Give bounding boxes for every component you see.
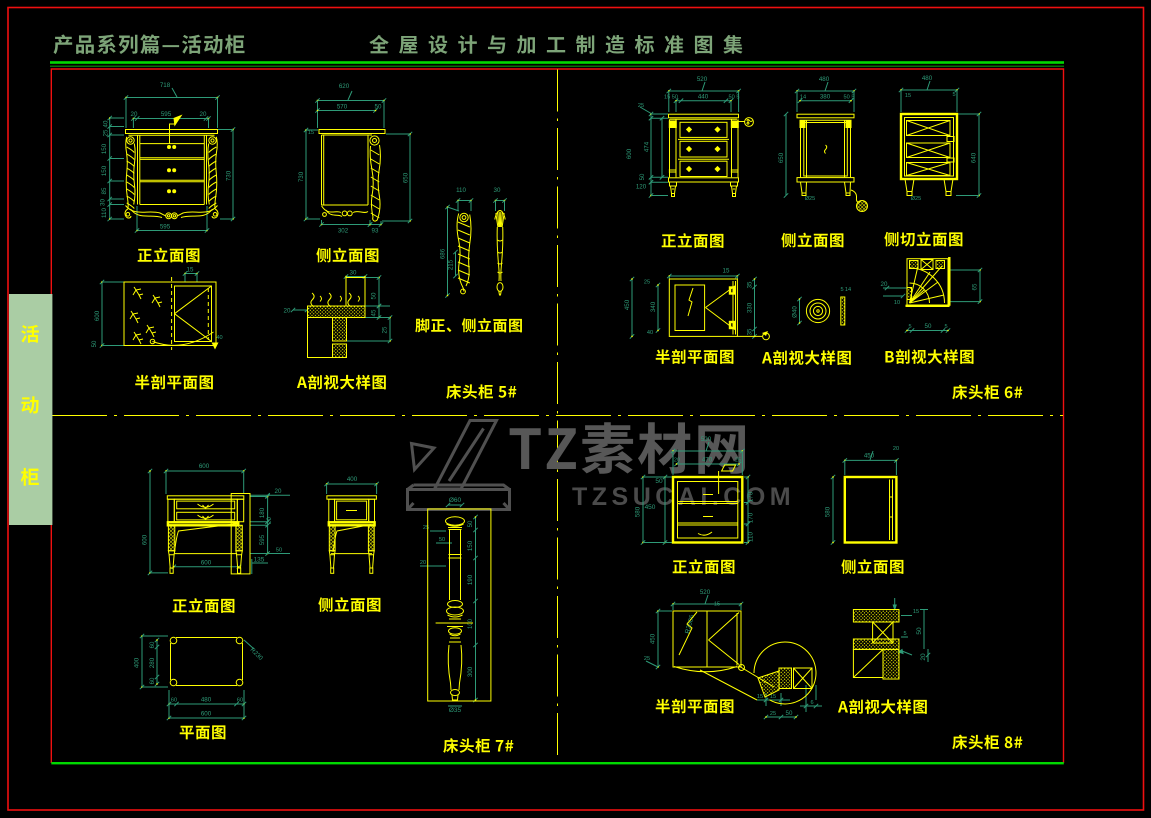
- svg-text:5: 5: [944, 324, 947, 330]
- svg-text:450: 450: [624, 299, 631, 310]
- svg-text:600: 600: [94, 310, 101, 321]
- svg-text:50: 50: [640, 173, 646, 180]
- svg-text:40: 40: [216, 335, 222, 341]
- svg-text:340: 340: [650, 301, 657, 312]
- svg-text:450: 450: [864, 453, 875, 460]
- svg-text:600: 600: [199, 463, 210, 470]
- svg-text:50: 50: [786, 710, 793, 717]
- svg-text:93: 93: [372, 228, 379, 235]
- svg-text:25: 25: [638, 103, 644, 109]
- svg-text:50: 50: [375, 104, 382, 111]
- svg-text:20: 20: [131, 111, 138, 118]
- svg-text:450: 450: [650, 633, 657, 644]
- svg-text:50: 50: [371, 292, 378, 299]
- svg-text:15 50: 15 50: [664, 95, 678, 101]
- svg-text:600: 600: [201, 559, 212, 566]
- svg-text:600: 600: [201, 711, 212, 718]
- svg-text:50: 50: [925, 323, 932, 330]
- svg-text:25: 25: [644, 656, 650, 662]
- svg-text:20: 20: [275, 488, 282, 495]
- svg-text:35: 35: [748, 281, 754, 288]
- svg-text:150: 150: [467, 540, 474, 551]
- svg-text:85: 85: [101, 187, 108, 194]
- svg-text:300: 300: [467, 666, 474, 677]
- svg-text:Ø40: Ø40: [792, 306, 799, 318]
- svg-text:170: 170: [748, 491, 755, 502]
- svg-text:40: 40: [103, 120, 110, 127]
- svg-text:580: 580: [825, 506, 832, 517]
- svg-text:520: 520: [697, 76, 708, 83]
- svg-text:15: 15: [905, 93, 911, 99]
- svg-text:450: 450: [645, 504, 656, 511]
- svg-text:480: 480: [201, 697, 212, 704]
- svg-text:280: 280: [149, 657, 156, 668]
- svg-text:15: 15: [757, 694, 763, 700]
- svg-text:686: 686: [440, 248, 447, 259]
- svg-text:Ø35: Ø35: [449, 707, 462, 714]
- svg-text:30: 30: [350, 270, 357, 277]
- svg-text:25: 25: [770, 711, 776, 717]
- svg-text:110: 110: [456, 187, 466, 194]
- svg-text:15: 15: [770, 694, 776, 700]
- svg-text:35: 35: [748, 328, 754, 335]
- svg-text:718: 718: [160, 82, 171, 89]
- svg-text:15: 15: [714, 602, 720, 608]
- svg-text:40: 40: [647, 330, 653, 336]
- svg-text:25: 25: [735, 458, 741, 464]
- svg-text:Ø25: Ø25: [911, 196, 922, 202]
- svg-text:10: 10: [894, 300, 900, 306]
- svg-text:480: 480: [819, 76, 830, 83]
- svg-text:595: 595: [160, 224, 171, 231]
- svg-text:520: 520: [701, 436, 712, 443]
- svg-text:480: 480: [922, 75, 933, 82]
- svg-text:120: 120: [636, 184, 647, 191]
- svg-text:150: 150: [101, 143, 108, 154]
- svg-text:20: 20: [420, 560, 426, 566]
- svg-text:440: 440: [698, 94, 709, 101]
- svg-text:15: 15: [308, 130, 314, 136]
- svg-text:50: 50: [276, 548, 282, 554]
- svg-text:180: 180: [259, 507, 266, 518]
- svg-text:50: 50: [468, 520, 474, 527]
- svg-text:45: 45: [371, 309, 378, 316]
- svg-text:30: 30: [100, 199, 107, 206]
- svg-text:400: 400: [134, 657, 141, 668]
- svg-text:5: 5: [952, 92, 955, 98]
- svg-text:150: 150: [101, 165, 108, 176]
- svg-text:50: 50: [92, 340, 98, 347]
- svg-text:595: 595: [259, 534, 266, 545]
- svg-text:650: 650: [778, 152, 785, 163]
- svg-text:15: 15: [723, 268, 730, 275]
- svg-text:50: 50: [439, 537, 445, 543]
- svg-text:730: 730: [298, 171, 305, 182]
- svg-text:50: 50: [655, 478, 663, 485]
- svg-text:60: 60: [150, 641, 156, 648]
- svg-text:400: 400: [347, 476, 358, 483]
- svg-text:60: 60: [150, 677, 156, 684]
- svg-text:110: 110: [748, 532, 755, 542]
- svg-text:Ø25: Ø25: [805, 196, 816, 202]
- svg-text:600: 600: [142, 534, 149, 545]
- svg-text:25: 25: [382, 326, 389, 333]
- svg-text:580: 580: [635, 506, 642, 517]
- svg-text:14: 14: [800, 95, 806, 101]
- svg-text:135: 135: [254, 557, 265, 564]
- svg-text:50 5: 50 5: [729, 95, 740, 101]
- svg-text:215: 215: [448, 259, 455, 270]
- svg-text:474: 474: [644, 141, 651, 152]
- svg-text:Ø60: Ø60: [449, 497, 462, 504]
- svg-text:50 5: 50 5: [844, 95, 855, 101]
- svg-text:20: 20: [200, 111, 207, 118]
- svg-text:650: 650: [403, 172, 410, 183]
- svg-text:25: 25: [644, 280, 650, 286]
- svg-text:380: 380: [820, 94, 831, 101]
- svg-text:14: 14: [845, 287, 851, 293]
- svg-text:5: 5: [840, 287, 843, 293]
- svg-text:20: 20: [893, 446, 899, 452]
- svg-text:6: 6: [810, 700, 813, 706]
- svg-text:20: 20: [284, 308, 291, 315]
- svg-text:15: 15: [913, 609, 919, 615]
- svg-text:190: 190: [467, 574, 474, 585]
- svg-text:640: 640: [971, 152, 978, 163]
- svg-text:20: 20: [920, 653, 927, 661]
- svg-text:330: 330: [747, 302, 754, 313]
- svg-text:110: 110: [101, 208, 108, 218]
- svg-text:470: 470: [702, 457, 713, 464]
- svg-text:60: 60: [237, 698, 243, 704]
- svg-text:TZSUCAI.COM: TZSUCAI.COM: [572, 483, 795, 511]
- svg-text:600: 600: [626, 148, 633, 159]
- svg-text:100: 100: [468, 618, 474, 629]
- svg-text:5: 5: [903, 631, 906, 637]
- svg-text:25: 25: [103, 129, 110, 136]
- svg-text:595: 595: [161, 111, 172, 118]
- svg-text:60: 60: [171, 698, 177, 704]
- svg-text:170: 170: [748, 512, 755, 523]
- svg-text:730: 730: [226, 170, 233, 181]
- svg-text:620: 620: [339, 83, 350, 90]
- svg-text:5: 5: [908, 324, 911, 330]
- svg-text:30: 30: [494, 187, 501, 194]
- svg-text:20: 20: [674, 458, 680, 464]
- svg-text:65: 65: [972, 283, 979, 290]
- svg-text:20: 20: [267, 517, 273, 524]
- svg-text:570: 570: [337, 104, 348, 111]
- svg-text:15: 15: [187, 267, 194, 274]
- svg-text:50: 50: [916, 627, 923, 635]
- svg-text:302: 302: [338, 228, 349, 235]
- svg-text:20: 20: [881, 281, 888, 288]
- svg-text:520: 520: [700, 589, 711, 596]
